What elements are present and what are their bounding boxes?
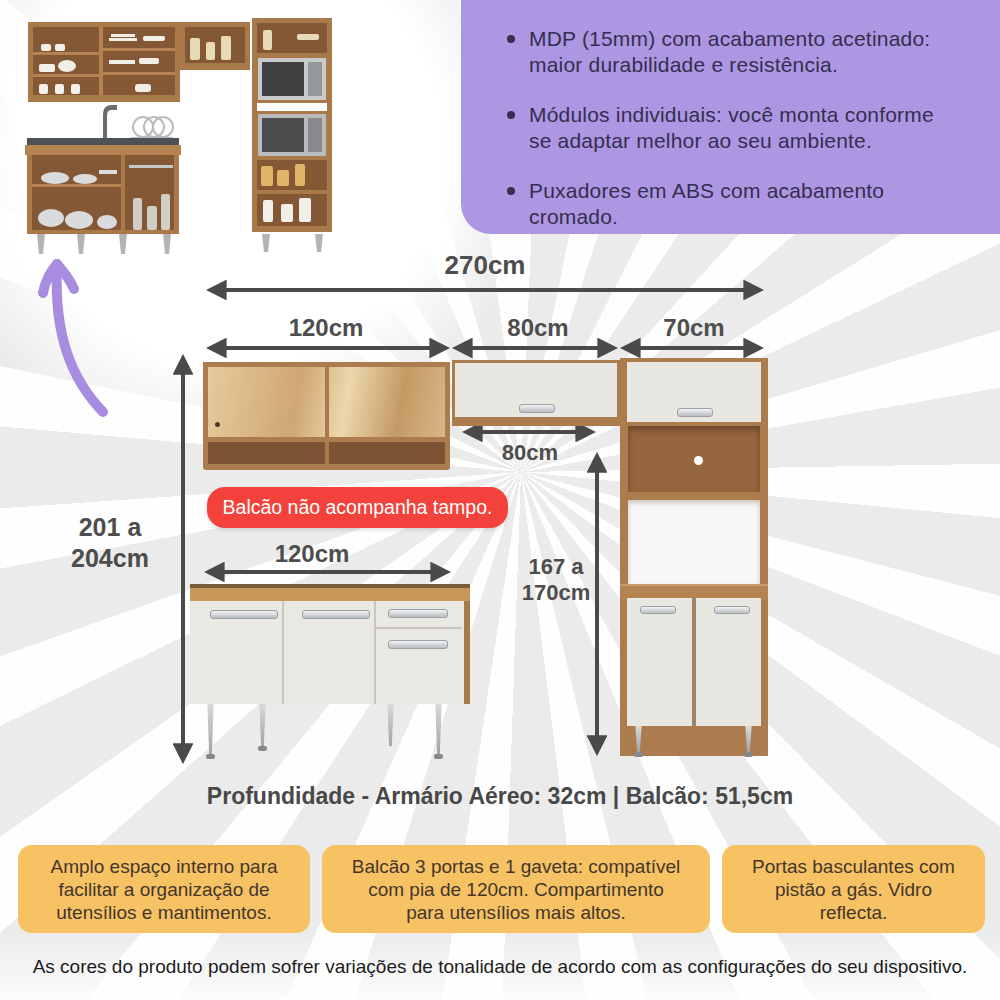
label-overall-height: 201 a204cm xyxy=(50,512,170,574)
highlight-box-counter: Balcão 3 portas e 1 gaveta: compatívelco… xyxy=(322,845,710,933)
label-module-70: 70cm xyxy=(634,314,754,342)
tower-open-shelf xyxy=(628,500,760,584)
diagram-top-cabinet xyxy=(452,360,620,426)
label-counter-width: 120cm xyxy=(252,540,372,568)
label-module-120: 120cm xyxy=(266,314,386,342)
feature-item: Puxadores em ABS com acabamentocromado. xyxy=(507,178,974,230)
bullet-dot-icon xyxy=(507,111,515,119)
label-inner-gap: 80cm xyxy=(470,440,590,466)
color-disclaimer: As cores do produto podem sofrer variaçõ… xyxy=(0,956,1000,978)
door-handle xyxy=(519,404,555,413)
door-handle xyxy=(302,610,370,619)
door-handle xyxy=(640,606,676,614)
door-handle xyxy=(714,606,750,614)
bullet-dot-icon xyxy=(507,187,515,195)
drawer-handle xyxy=(388,609,448,618)
tower-niche xyxy=(628,426,760,492)
feature-item: Módulos individuais: você monta conforme… xyxy=(507,102,974,154)
feature-text: Módulos individuais: você monta conforme… xyxy=(529,102,934,154)
photo-wall-cabinet xyxy=(28,22,180,102)
tower-bottom-door-left xyxy=(627,598,692,726)
counter-rim xyxy=(190,584,470,601)
label-total-width: 270cm xyxy=(425,250,545,281)
feature-item: MDP (15mm) com acabamento acetinado:maio… xyxy=(507,26,974,78)
diagram-wall-cabinet xyxy=(203,362,450,470)
depth-note: Profundidade - Armário Aéreo: 32cm | Bal… xyxy=(0,783,1000,810)
photo-tall-cabinet xyxy=(252,18,332,252)
photo-sink-cabinet xyxy=(25,105,181,254)
door-handle xyxy=(677,408,713,417)
highlight-box-doors: Portas basculantes compistão a gás. Vidr… xyxy=(722,845,985,933)
product-photo xyxy=(15,8,455,258)
door-knob xyxy=(215,422,220,427)
feature-panel: MDP (15mm) com acabamento acetinado:maio… xyxy=(461,0,1000,234)
product-infographic: MDP (15mm) com acabamento acetinado:maio… xyxy=(0,0,1000,1000)
door-handle xyxy=(388,640,448,649)
feature-text: Puxadores em ABS com acabamentocromado. xyxy=(529,178,884,230)
diagram-tall-cabinet xyxy=(620,358,768,756)
photo-middle-cabinet xyxy=(180,22,250,70)
diagram-counter-cabinet xyxy=(190,584,470,704)
bullet-dot-icon xyxy=(507,35,515,43)
label-module-80: 80cm xyxy=(478,314,598,342)
label-tower-height: 167 a170cm xyxy=(506,554,606,606)
door-handle xyxy=(210,610,278,619)
tower-bottom-door-right xyxy=(696,598,761,726)
cable-hole xyxy=(694,456,703,465)
no-countertop-badge: Balcão não acompanha tampo. xyxy=(207,487,508,528)
highlight-box-interior-space: Amplo espaço interno parafacilitar a org… xyxy=(18,845,310,933)
feature-text: MDP (15mm) com acabamento acetinado:maio… xyxy=(529,26,930,78)
